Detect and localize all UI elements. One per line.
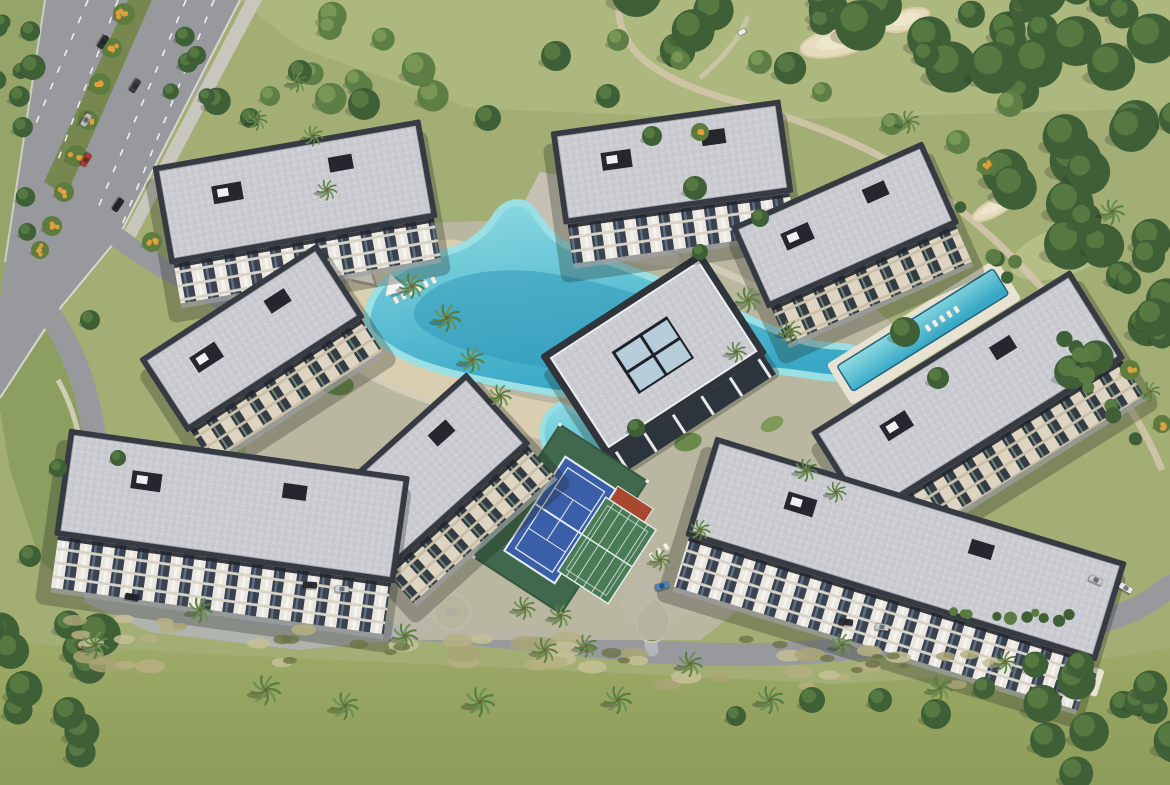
rough-grass-patch <box>247 638 270 649</box>
palm-trunk-top <box>198 608 202 612</box>
palm-trunk-top <box>584 644 587 647</box>
blossom <box>1128 368 1133 373</box>
tree-highlight <box>320 18 333 31</box>
palm-trunk-top <box>804 468 807 471</box>
tree-highlight <box>1000 93 1014 107</box>
blossom <box>38 248 42 252</box>
tree-highlight <box>814 84 825 95</box>
scrub-patch <box>349 640 368 649</box>
scrub-patch <box>283 657 297 664</box>
rough-grass-patch <box>784 665 813 678</box>
hedge-bush <box>1105 407 1121 423</box>
rough-grass-patch <box>291 624 316 635</box>
tree-highlight <box>1047 118 1072 143</box>
tree-highlight <box>11 88 23 100</box>
palm-trunk-top <box>558 614 561 617</box>
tree-highlight <box>870 690 883 703</box>
tree-highlight <box>728 708 739 719</box>
palm-trunk-top <box>1149 391 1152 394</box>
palm-trunk-top <box>835 491 838 494</box>
tree-highlight <box>912 20 936 44</box>
palm-trunk-top <box>840 643 843 646</box>
tree-highlight <box>9 674 29 694</box>
hedge-bush <box>1056 331 1072 347</box>
scrub-patch <box>851 667 863 673</box>
rough-grass-patch <box>960 650 980 659</box>
blossom <box>89 120 94 125</box>
scrub-patch <box>820 655 834 662</box>
tree-highlight <box>1063 759 1082 778</box>
tree-highlight <box>112 451 121 460</box>
palm-trunk-top <box>256 119 259 122</box>
palm-trunk-top <box>735 351 738 354</box>
blossom <box>50 225 55 230</box>
tree-highlight <box>1073 715 1095 737</box>
aerial-render-image: Aerial render of a residential apartment… <box>0 0 1170 785</box>
tree-highlight <box>200 89 209 98</box>
tree-highlight <box>164 85 173 94</box>
palm-trunk-top <box>699 529 702 532</box>
tree-highlight <box>23 56 37 70</box>
hedge-bush <box>1072 347 1087 362</box>
tree-highlight <box>883 115 895 127</box>
tree-highlight <box>777 54 795 72</box>
blossom <box>698 129 702 133</box>
rough-grass-patch <box>116 661 135 670</box>
palm-trunk-top <box>688 662 692 666</box>
blossom <box>55 225 60 230</box>
hedge-bush <box>1008 255 1022 269</box>
blossom <box>986 160 990 164</box>
tree-highlight <box>351 90 369 108</box>
tree-highlight <box>753 210 763 220</box>
scrub-patch <box>739 636 754 643</box>
tree-highlight <box>18 189 29 200</box>
rooftop-ac-unit <box>136 475 148 484</box>
tree-highlight <box>82 312 93 323</box>
blossom <box>154 238 159 243</box>
hedge-bush <box>1129 432 1142 445</box>
hedge-bush <box>1004 612 1017 625</box>
blossom <box>123 11 128 16</box>
tree-highlight <box>405 55 424 74</box>
palm-trunk-top <box>1110 210 1114 214</box>
masterplan-scene: Aerial render of a residential apartment… <box>0 0 1170 785</box>
tree-highlight <box>974 46 1003 75</box>
tree-highlight <box>544 43 561 60</box>
tree-highlight <box>177 28 188 39</box>
hedge-bush <box>992 612 1001 621</box>
tree-highlight <box>1051 184 1077 210</box>
tree-highlight <box>802 689 816 703</box>
tree-highlight <box>975 679 987 691</box>
hedge-bush <box>955 201 967 213</box>
hedge-bush <box>963 609 973 619</box>
tree-highlight <box>1137 673 1156 692</box>
palm-trunk-top <box>522 606 525 609</box>
palm-trunk-top <box>768 698 772 702</box>
tree-highlight <box>948 132 961 145</box>
palm-trunk-top <box>343 704 347 708</box>
rough-grass-patch <box>114 615 133 624</box>
scrub-patch <box>772 641 787 649</box>
rough-grass-patch <box>140 634 159 642</box>
rough-grass-patch <box>446 646 482 662</box>
rough-grass-patch <box>710 672 731 681</box>
rough-grass-patch <box>627 656 648 666</box>
blossom <box>118 9 123 14</box>
tree-highlight <box>1114 111 1138 135</box>
car <box>334 585 350 594</box>
palm-trunk-top <box>788 330 791 333</box>
palm-trunk-top <box>906 120 909 123</box>
scrub-patch <box>899 663 909 668</box>
rough-grass-patch <box>936 652 955 661</box>
scrub-patch <box>618 657 630 663</box>
tree-highlight <box>629 420 639 430</box>
palm-trunk-top <box>403 634 407 638</box>
tree-highlight <box>15 119 26 130</box>
palm-trunk-top <box>1003 660 1006 663</box>
palm-trunk-top <box>746 298 750 302</box>
tree-highlight <box>1025 653 1039 667</box>
car-glass <box>879 624 885 629</box>
tree-highlight <box>750 52 763 65</box>
palm-trunk-top <box>410 284 414 288</box>
rough-grass-patch <box>135 659 165 673</box>
tree-highlight <box>20 224 30 234</box>
hedge-bush <box>1031 609 1039 617</box>
palm-trunk-top <box>938 686 942 690</box>
tree-highlight <box>374 29 387 42</box>
palm-trunk-top <box>478 700 482 704</box>
hedge-bush <box>949 607 958 616</box>
rough-grass-patch <box>173 623 188 630</box>
tree-highlight <box>929 369 941 381</box>
scrub-patch <box>886 652 900 659</box>
tree-highlight <box>685 178 698 191</box>
hedge-bush <box>1039 613 1049 623</box>
tree-highlight <box>1111 0 1128 17</box>
blossom <box>1132 368 1137 373</box>
blossom <box>147 240 152 245</box>
hedge-bush <box>985 249 1001 265</box>
tree-highlight <box>347 71 359 83</box>
tree-highlight <box>1139 301 1160 322</box>
car-glass <box>843 619 849 624</box>
tree-highlight <box>56 699 74 717</box>
tree-highlight <box>22 23 33 34</box>
scrub-patch <box>872 654 883 659</box>
tree-highlight <box>1072 205 1090 223</box>
tree-highlight <box>21 547 33 559</box>
blossom <box>68 152 73 157</box>
hedge-bush <box>1053 615 1065 627</box>
rough-grass-patch <box>471 634 493 644</box>
tree-highlight <box>51 460 61 470</box>
rough-grass-patch <box>114 635 135 644</box>
hedge-bush <box>1082 381 1094 393</box>
hedge-bush <box>1063 609 1074 620</box>
palm-trunk-top <box>445 316 449 320</box>
tree-highlight <box>478 107 492 121</box>
blossom <box>114 44 119 49</box>
tree-highlight <box>996 168 1021 193</box>
tree-highlight <box>1070 155 1090 175</box>
scrub-patch <box>273 635 292 644</box>
rough-grass-patch <box>819 670 840 679</box>
scrub-patch <box>865 660 880 668</box>
rough-grass-patch <box>71 631 91 640</box>
blossom <box>110 46 115 51</box>
tree-highlight <box>1092 46 1118 72</box>
blossom <box>60 189 65 194</box>
tree-highlight <box>1118 270 1132 284</box>
palm-trunk-top <box>659 559 662 562</box>
tree-highlight <box>1030 16 1047 33</box>
tree-highlight <box>1135 242 1153 260</box>
tree-highlight <box>676 12 700 36</box>
tree-highlight <box>924 701 941 718</box>
tree-highlight <box>672 52 683 63</box>
tree-highlight <box>840 4 868 32</box>
hedge-bush <box>1001 271 1013 283</box>
car-glass <box>339 587 344 592</box>
car-glass <box>129 594 135 599</box>
tree-highlight <box>318 85 335 102</box>
rough-grass-patch <box>156 618 174 626</box>
car <box>302 581 318 590</box>
rooftop-ac-unit <box>606 155 618 164</box>
car-glass <box>307 583 312 588</box>
scrub-patch <box>393 642 410 650</box>
rough-grass-patch <box>578 660 607 673</box>
tree-highlight <box>1027 688 1048 709</box>
tree-highlight <box>694 245 703 254</box>
tree-highlight <box>644 128 655 139</box>
tree-highlight <box>1070 653 1085 668</box>
palm-trunk-top <box>543 648 547 652</box>
tree-highlight <box>812 10 827 25</box>
tree-highlight <box>916 44 930 58</box>
tree-highlight <box>189 47 199 57</box>
scrub-patch <box>602 648 622 658</box>
tree-highlight <box>262 88 273 99</box>
tree-highlight <box>598 86 611 99</box>
palm-trunk-top <box>326 189 329 192</box>
palm-trunk-top <box>616 698 620 702</box>
rough-grass-patch <box>63 615 87 626</box>
palm-trunk-top <box>470 358 474 362</box>
blossom <box>1163 424 1167 428</box>
blossom <box>94 82 99 87</box>
tree-highlight <box>1056 20 1083 47</box>
palm-trunk-top <box>498 394 501 397</box>
palm-trunk-top <box>312 135 315 138</box>
blossom <box>983 163 987 167</box>
tree-highlight <box>1034 725 1054 745</box>
palm-trunk-top <box>296 81 299 84</box>
tree-highlight <box>893 319 910 336</box>
scrub-patch <box>384 649 396 655</box>
palm-trunk-top <box>93 643 97 647</box>
tree-highlight <box>961 3 976 18</box>
tree-highlight <box>609 31 621 43</box>
rough-grass-patch <box>443 634 474 648</box>
tree-highlight <box>290 62 303 75</box>
tree-highlight <box>1018 42 1045 69</box>
palm-trunk-top <box>264 688 268 692</box>
blossom <box>116 14 121 19</box>
